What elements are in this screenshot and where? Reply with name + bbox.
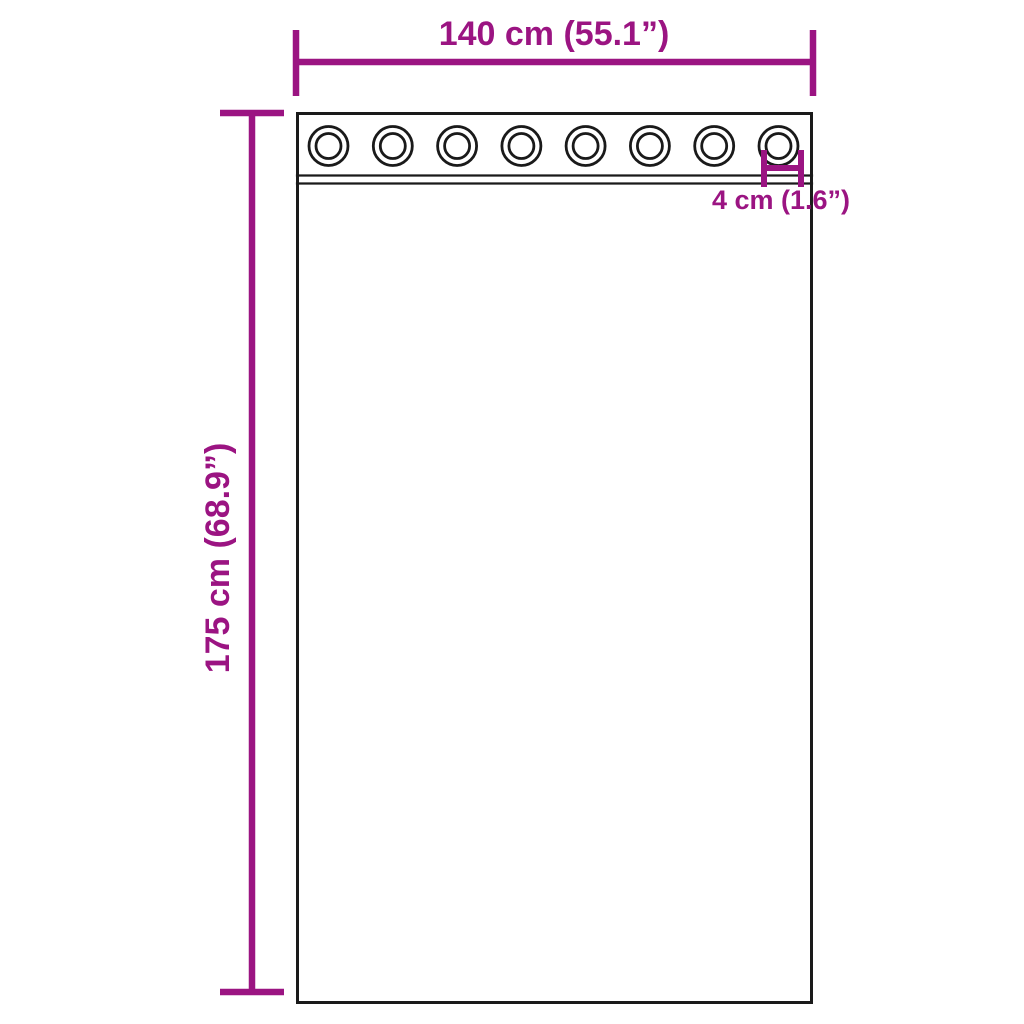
- curtain: [297, 114, 812, 1003]
- width-dimension-label: 140 cm (55.1”): [439, 15, 670, 53]
- grommet-dimension-label: 4 cm (1.6”): [712, 185, 850, 215]
- diagram-canvas: 140 cm (55.1”) 175 cm (68.9”) 4 cm (1.6”…: [0, 0, 1024, 1024]
- height-dimension-label: 175 cm (68.9”): [199, 443, 237, 674]
- curtain-dimension-diagram: 140 cm (55.1”) 175 cm (68.9”) 4 cm (1.6”…: [0, 0, 1024, 1024]
- curtain-panel-outline: [298, 114, 812, 1003]
